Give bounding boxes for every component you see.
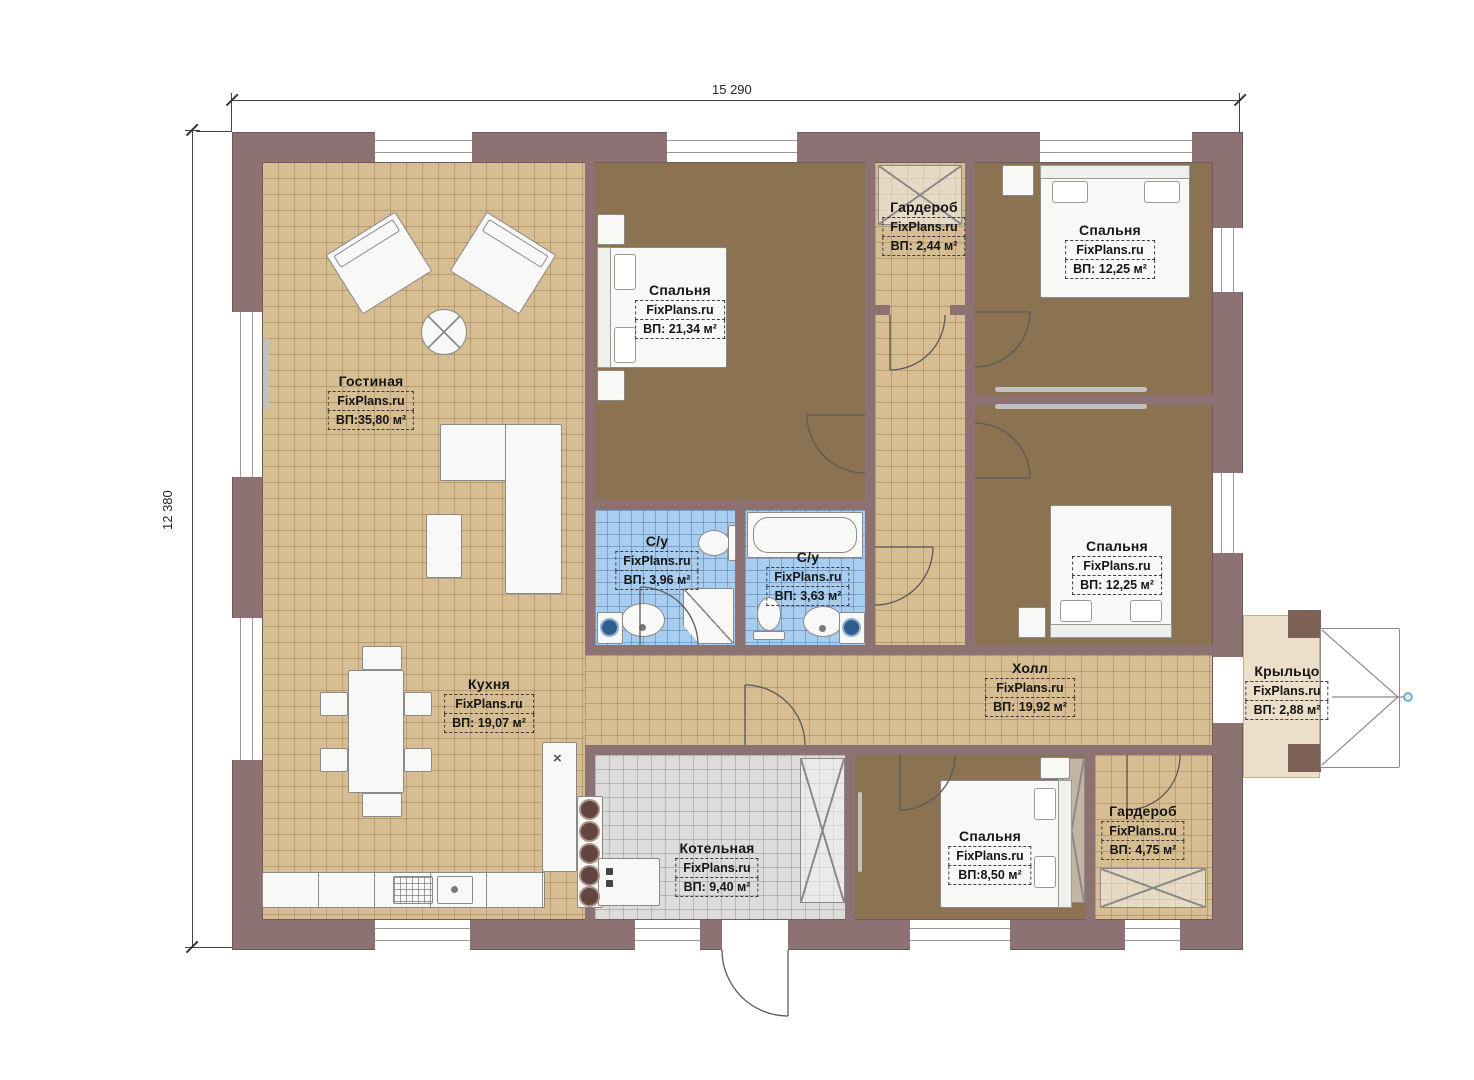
door-arc — [722, 950, 788, 1016]
watermark: FixPlans.ru — [985, 678, 1075, 698]
wall-segment — [965, 478, 975, 645]
pillow — [614, 327, 636, 363]
floor-plan-canvas: 15 290 12 380 — [0, 0, 1474, 1080]
room-name: Спальня — [1065, 222, 1155, 238]
dimension-extension — [231, 106, 232, 132]
coffee-table — [421, 309, 467, 355]
window — [375, 132, 472, 162]
room-name: Гостиная — [328, 373, 414, 389]
window — [1125, 920, 1180, 950]
wall-segment — [585, 745, 745, 755]
faucet-icon — [819, 625, 826, 632]
dimension-line-width — [232, 100, 1240, 101]
watermark: FixPlans.ru — [882, 217, 965, 237]
room-label-bedroom-master: Спальня FixPlans.ru ВП: 21,34 м² — [635, 282, 725, 339]
room-name: С/у — [766, 549, 849, 565]
room-name: С/у — [615, 533, 698, 549]
floor-hall — [585, 655, 1213, 745]
room-name: Спальня — [635, 282, 725, 298]
room-area: ВП: 2,44 м² — [882, 237, 965, 256]
pillow — [1034, 788, 1056, 820]
watermark: FixPlans.ru — [675, 858, 758, 878]
room-label-bath-tub: С/у FixPlans.ru ВП: 3,63 м² — [766, 549, 849, 606]
wall-segment — [865, 470, 875, 547]
window — [1213, 473, 1243, 553]
room-name: Гардероб — [882, 199, 965, 215]
wall-segment — [965, 367, 975, 423]
room-area: ВП: 3,63 м² — [766, 587, 849, 606]
room-label-wardrobe-bottom: Гардероб FixPlans.ru ВП: 4,75 м² — [1101, 803, 1184, 860]
room-area: ВП: 2,88 м² — [1245, 701, 1328, 720]
watermark: FixPlans.ru — [444, 694, 534, 714]
radiator — [995, 404, 1147, 409]
dimension-extension — [1239, 106, 1240, 132]
closet — [1100, 868, 1206, 908]
bathroom-sink — [621, 603, 665, 637]
washer-drum-icon — [600, 618, 619, 637]
wall-segment — [595, 500, 865, 510]
watermark: FixPlans.ru — [766, 567, 849, 587]
wall-segment — [698, 645, 875, 655]
room-name: Крыльцо — [1245, 663, 1328, 679]
wall-segment — [965, 645, 1213, 655]
dining-table — [348, 670, 404, 793]
window — [1040, 132, 1192, 162]
room-area: ВП: 4,75 м² — [1101, 841, 1184, 860]
wall-segment — [845, 755, 855, 920]
window — [910, 920, 1010, 950]
room-area: ВП: 9,40 м² — [675, 878, 758, 897]
room-label-bath-shower: С/у FixPlans.ru ВП: 3,96 м² — [615, 533, 698, 590]
bed-headboard — [1058, 780, 1072, 908]
porch-pillar — [1288, 610, 1321, 638]
room-label-bedroom-mid-right: Спальня FixPlans.ru ВП: 12,25 м² — [1072, 538, 1162, 595]
porch-steps — [1320, 628, 1400, 768]
pillow — [1034, 856, 1056, 888]
wall-segment — [585, 162, 595, 645]
watermark: FixPlans.ru — [635, 300, 725, 320]
bed-headboard — [597, 247, 611, 368]
dimension-line-height — [192, 130, 193, 948]
dimension-width-label: 15 290 — [712, 82, 752, 97]
room-area: ВП: 12,25 м² — [1072, 576, 1162, 595]
chair — [320, 692, 348, 716]
room-area: ВП:8,50 м² — [948, 866, 1031, 885]
room-area: ВП: 21,34 м² — [635, 320, 725, 339]
room-label-hall: Холл FixPlans.ru ВП: 19,92 м² — [985, 660, 1075, 717]
wall-segment — [595, 645, 640, 655]
room-label-boiler: Котельная FixPlans.ru ВП: 9,40 м² — [675, 840, 758, 897]
wall-segment — [735, 510, 745, 645]
wall-segment — [957, 745, 1125, 755]
wall-segment — [965, 162, 975, 312]
room-name: Кухня — [444, 676, 534, 692]
window — [232, 312, 262, 477]
room-name: Спальня — [948, 828, 1031, 844]
sink-drain-icon — [451, 886, 458, 893]
radiator — [858, 792, 862, 872]
faucet-icon — [639, 624, 646, 631]
wall-segment — [865, 162, 875, 415]
room-label-kitchen: Кухня FixPlans.ru ВП: 19,07 м² — [444, 676, 534, 733]
room-area: ВП: 19,92 м² — [985, 698, 1075, 717]
chair — [404, 692, 432, 716]
entrance-door-opening — [722, 920, 788, 950]
watermark: FixPlans.ru — [1101, 821, 1184, 841]
nightstand — [597, 370, 625, 401]
watermark: FixPlans.ru — [1072, 556, 1162, 576]
room-label-wardrobe-top: Гардероб FixPlans.ru ВП: 2,44 м² — [882, 199, 965, 256]
bed-headboard — [1050, 624, 1172, 638]
window — [667, 132, 797, 162]
room-name: Котельная — [675, 840, 758, 856]
bathtub-basin — [753, 517, 857, 553]
pillow — [1144, 181, 1180, 203]
wall-segment — [950, 305, 965, 315]
equipment-detail — [606, 868, 613, 875]
stove-burner-icon — [579, 865, 600, 886]
pillow — [1052, 181, 1088, 203]
cabinet-x-icon: × — [553, 750, 562, 767]
wall-segment — [1085, 755, 1095, 920]
toilet — [698, 530, 730, 556]
window — [635, 920, 700, 950]
room-area: ВП: 3,96 м² — [615, 571, 698, 590]
closet — [800, 758, 845, 903]
chair — [362, 793, 402, 817]
nightstand — [1040, 757, 1070, 779]
pillow — [1060, 600, 1092, 622]
porch-pillar — [1288, 744, 1321, 772]
room-name: Гардероб — [1101, 803, 1184, 819]
watermark: FixPlans.ru — [1245, 681, 1328, 701]
dimension-height-label: 12 380 — [160, 490, 175, 530]
nightstand — [597, 214, 625, 245]
chair — [320, 748, 348, 772]
room-area: ВП:35,80 м² — [328, 411, 414, 430]
watermark: FixPlans.ru — [328, 391, 414, 411]
room-label-bedroom-top-right: Спальня FixPlans.ru ВП: 12,25 м² — [1065, 222, 1155, 279]
wall-segment — [875, 305, 890, 315]
window — [232, 618, 262, 760]
chair — [362, 646, 402, 670]
room-area: ВП: 19,07 м² — [444, 714, 534, 733]
pillow — [614, 254, 636, 290]
bathroom-sink — [803, 606, 843, 637]
stove-burner-icon — [579, 799, 600, 820]
stove-burner-icon — [579, 886, 600, 907]
dimension-extension — [196, 131, 232, 132]
pillow — [1130, 600, 1162, 622]
window — [1213, 228, 1243, 292]
room-label-porch: Крыльцо FixPlans.ru ВП: 2,88 м² — [1245, 663, 1328, 720]
radiator — [264, 338, 269, 410]
watermark: FixPlans.ru — [615, 551, 698, 571]
watermark: FixPlans.ru — [948, 846, 1031, 866]
chair — [404, 748, 432, 772]
room-name: Спальня — [1072, 538, 1162, 554]
wall-segment — [1180, 745, 1213, 755]
room-name: Холл — [985, 660, 1075, 676]
washer-drum-icon — [842, 618, 861, 637]
window — [375, 920, 470, 950]
wall-segment — [865, 605, 875, 645]
selection-handle-icon — [1404, 693, 1412, 701]
nightstand — [1018, 607, 1046, 638]
sofa — [505, 424, 562, 594]
equipment-detail — [606, 880, 613, 887]
stove-burner-icon — [579, 843, 600, 864]
room-label-living: Гостиная FixPlans.ru ВП:35,80 м² — [328, 373, 414, 430]
stove-burner-icon — [579, 821, 600, 842]
radiator — [995, 387, 1147, 392]
room-area: ВП: 12,25 м² — [1065, 260, 1155, 279]
bed-headboard — [1040, 165, 1190, 179]
toilet-tank — [728, 525, 736, 561]
toilet-tank — [753, 631, 785, 640]
sink-drainer — [393, 876, 433, 904]
side-table — [426, 514, 462, 578]
porch-door-opening — [1213, 657, 1243, 723]
wall-segment — [805, 745, 900, 755]
watermark: FixPlans.ru — [1065, 240, 1155, 260]
nightstand — [1002, 165, 1034, 196]
dimension-extension — [196, 947, 232, 948]
room-label-bedroom-small: Спальня FixPlans.ru ВП:8,50 м² — [948, 828, 1031, 885]
